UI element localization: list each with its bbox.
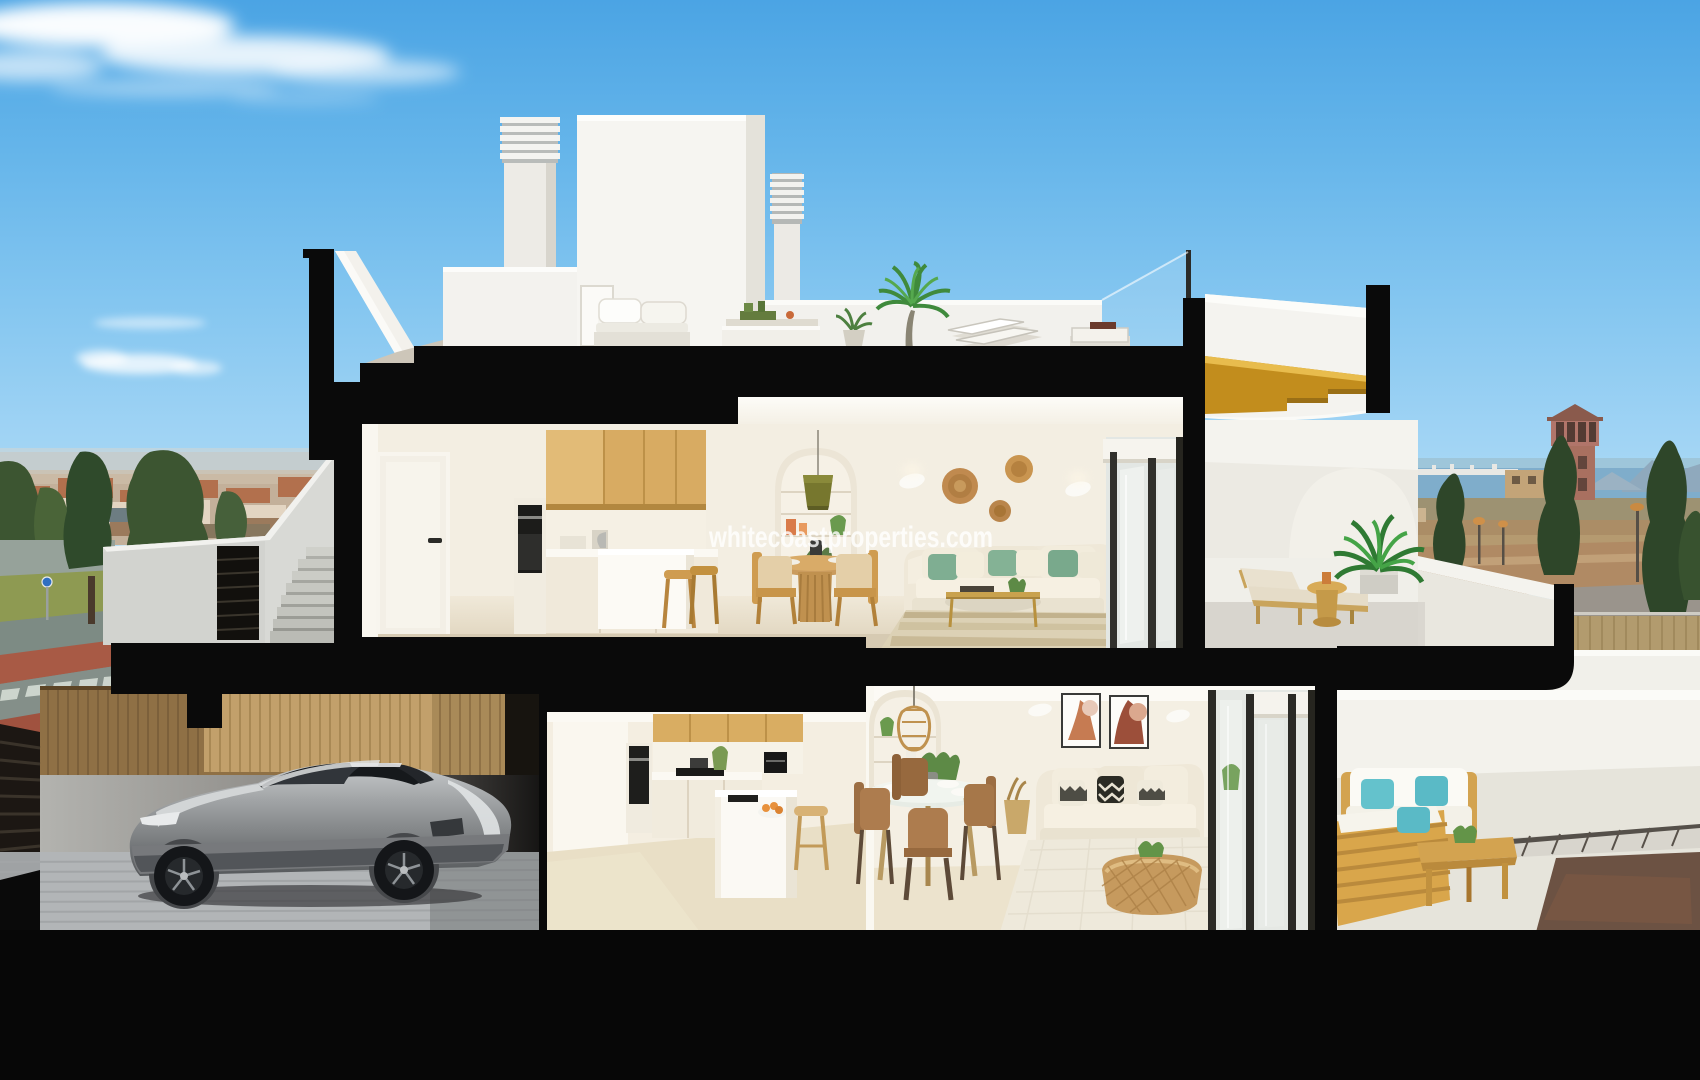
svg-text:whitecoastproperties.com: whitecoastproperties.com bbox=[708, 521, 993, 554]
